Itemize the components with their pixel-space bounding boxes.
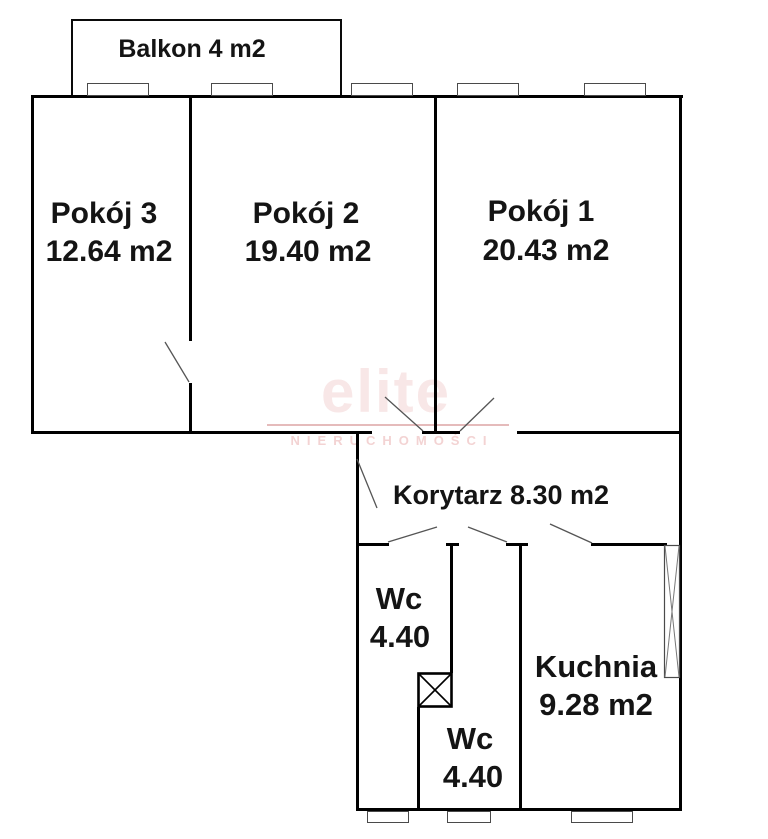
kuchnia-area: 9.28 m2 xyxy=(539,689,653,720)
pokoj1-name: Pokój 1 xyxy=(488,197,595,227)
kuchnia-name: Kuchnia xyxy=(535,651,657,682)
korytarz-label: Korytarz 8.30 m2 xyxy=(393,482,609,509)
wc-bottom-area: 4.40 xyxy=(443,761,503,792)
door-swing-pokoj3 xyxy=(165,342,189,382)
door-swing-kuchnia xyxy=(550,524,592,543)
wc-top-name: Wc xyxy=(376,583,423,614)
door-swing-entrance xyxy=(357,459,377,508)
window-icon-kuchnia-east xyxy=(665,546,680,678)
pokoj3-area: 12.64 m2 xyxy=(46,237,173,267)
door-swing-wc-bottom xyxy=(468,527,507,542)
door-swing-pokoj2 xyxy=(385,397,423,431)
balcony-label: Balkon 4 m2 xyxy=(118,37,265,62)
pokoj2-name: Pokój 2 xyxy=(253,199,360,229)
wc-bottom-name: Wc xyxy=(447,723,494,754)
pokoj1-area: 20.43 m2 xyxy=(483,236,610,266)
floor-plan: elite NIERUCHOMOŚCI xyxy=(0,0,768,839)
pokoj3-name: Pokój 3 xyxy=(51,199,158,229)
door-swing-pokoj1 xyxy=(460,398,494,431)
wc-top-area: 4.40 xyxy=(370,621,430,652)
shaft-icon xyxy=(419,674,452,707)
door-swing-wc-top xyxy=(388,527,437,542)
pokoj2-area: 19.40 m2 xyxy=(245,237,372,267)
